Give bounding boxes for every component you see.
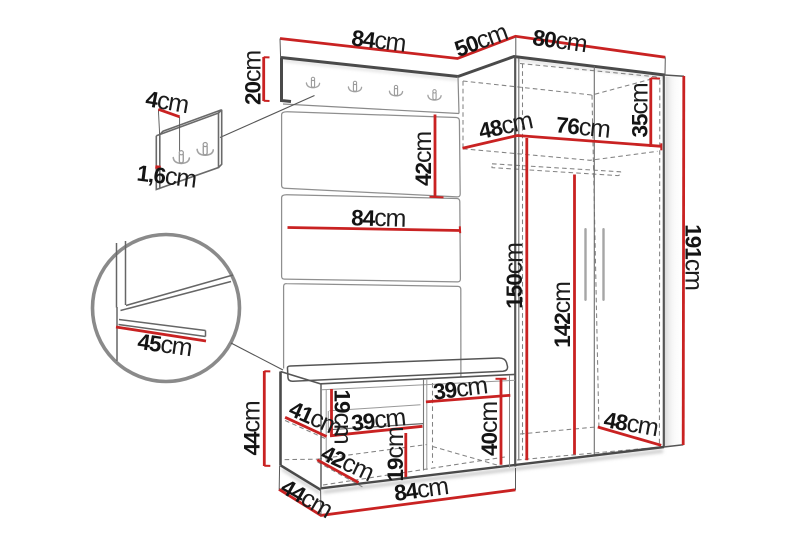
svg-text:35cm: 35cm xyxy=(626,83,654,137)
svg-text:84cm: 84cm xyxy=(351,203,406,232)
svg-text:150cm: 150cm xyxy=(500,243,528,309)
svg-text:20cm: 20cm xyxy=(239,51,267,105)
svg-text:42cm: 42cm xyxy=(409,132,437,186)
svg-text:142cm: 142cm xyxy=(548,282,576,348)
svg-text:19cm: 19cm xyxy=(381,427,409,481)
svg-text:40cm: 40cm xyxy=(475,402,503,456)
svg-text:191cm: 191cm xyxy=(680,224,708,290)
svg-text:44cm: 44cm xyxy=(238,401,266,455)
